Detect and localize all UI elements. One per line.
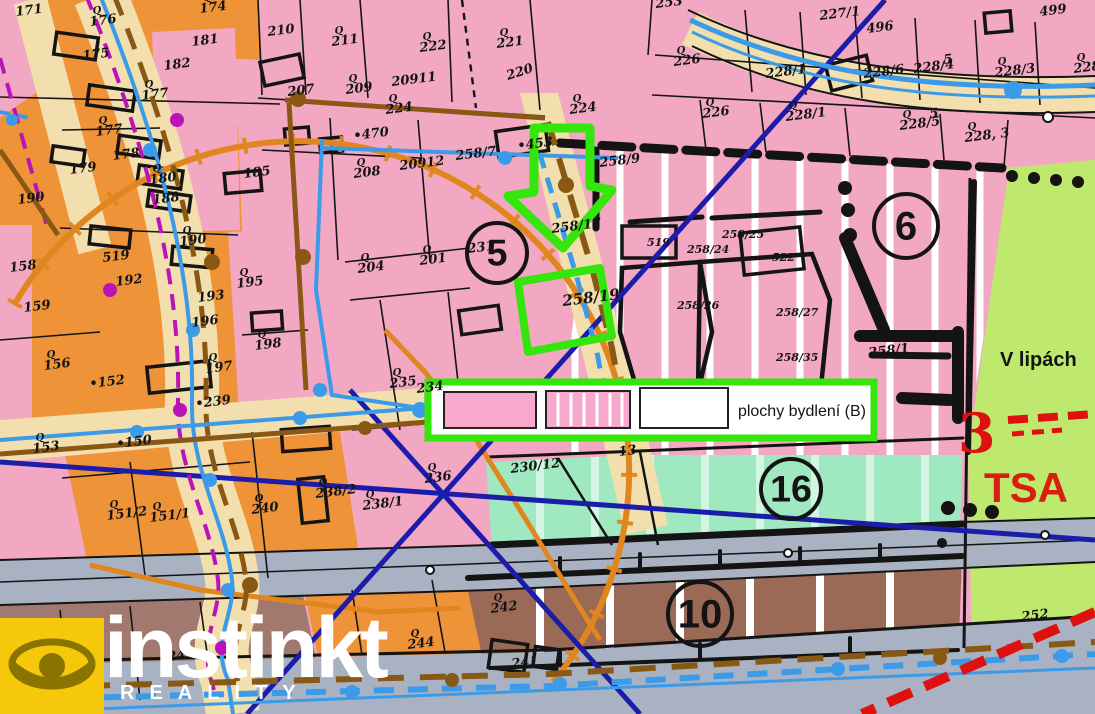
street-name-label: V lipách [1000, 349, 1077, 371]
parcel-symbol-q: Q [1076, 52, 1086, 64]
parcel-symbol-q: Q [360, 252, 370, 264]
parcel-symbol-q: Q [388, 93, 398, 105]
tsa-label: TSA [984, 464, 1068, 511]
parcel-symbol-q: Q [967, 121, 977, 133]
parcel-symbol-q: Q [152, 163, 162, 175]
parcel-symbol-q: Q [109, 499, 119, 511]
parcel-symbol-q: Q [318, 477, 328, 489]
parcel-label: 258/25 [721, 228, 764, 241]
map-legend: plochy bydlení (B) [428, 382, 874, 438]
parcel-symbol-q: Q [997, 56, 1007, 68]
parcel-symbol-q: Q [144, 79, 154, 91]
parcel-symbol-q: Q [35, 432, 45, 444]
parcel-symbol-q: Q [499, 27, 509, 39]
parcel-label: 258/24 [686, 243, 729, 256]
parcel-symbol-q: Q [152, 501, 162, 513]
parcel-symbol-q: Q [356, 157, 366, 169]
parcel-symbol-q: Q [257, 329, 267, 341]
parcel-label: 13 [618, 443, 638, 460]
parcel-symbol-q: Q [92, 5, 102, 17]
legend-swatch-white [640, 388, 728, 428]
parcel-symbol-q: Q [98, 115, 108, 127]
svg-text:16: 16 [770, 468, 812, 510]
parcel-symbol-q: Q [427, 462, 437, 474]
eye-icon [0, 618, 104, 714]
parcel-symbol-q: Q [788, 100, 798, 112]
parcel-symbol-q: Q [208, 352, 218, 364]
parcel-label: 5 [943, 52, 954, 68]
watermark-logo [0, 618, 104, 714]
parcel-symbol-q: Q [254, 493, 264, 505]
svg-text:6: 6 [895, 204, 917, 248]
svg-text:10: 10 [678, 592, 723, 636]
cadastral-zoning-map: 3 TSA V lipách plochy bydlení (B) 561610… [0, 0, 1095, 714]
parcel-label: 522 [772, 251, 795, 264]
parcel-symbol-q: Q [422, 31, 432, 43]
parcel-symbol-q: Q [46, 349, 56, 361]
parcel-symbol-q: Q [334, 25, 344, 37]
legend-swatch-solid [444, 392, 536, 428]
legend-swatch-striped [546, 391, 630, 428]
parcel-label: 258/26 [676, 299, 720, 312]
parcel-symbol-q: Q [705, 97, 715, 109]
parcel-symbol-q: Q [676, 45, 686, 57]
parcel-symbol-q: Q [902, 109, 912, 121]
parcel-label: 258/35 [775, 351, 818, 364]
parcel-symbol-q: Q [239, 267, 249, 279]
parcel-label: 258/27 [775, 306, 819, 319]
parcel-symbol-q: Q [422, 244, 432, 256]
parcel-label: 5 [929, 106, 940, 122]
parcel-symbol-q: Q [348, 73, 358, 85]
parcel-label: 519 [647, 236, 670, 249]
parcel-symbol-q: Q [392, 367, 402, 379]
parcel-symbol-q: Q [365, 489, 375, 501]
red-mark-3: 3 [958, 401, 996, 465]
watermark-subtitle: REALITY [120, 682, 311, 705]
legend-label: plochy bydlení (B) [738, 403, 866, 420]
parcel-symbol-q: Q [182, 225, 192, 237]
parcel-symbol-q: Q [572, 93, 582, 105]
